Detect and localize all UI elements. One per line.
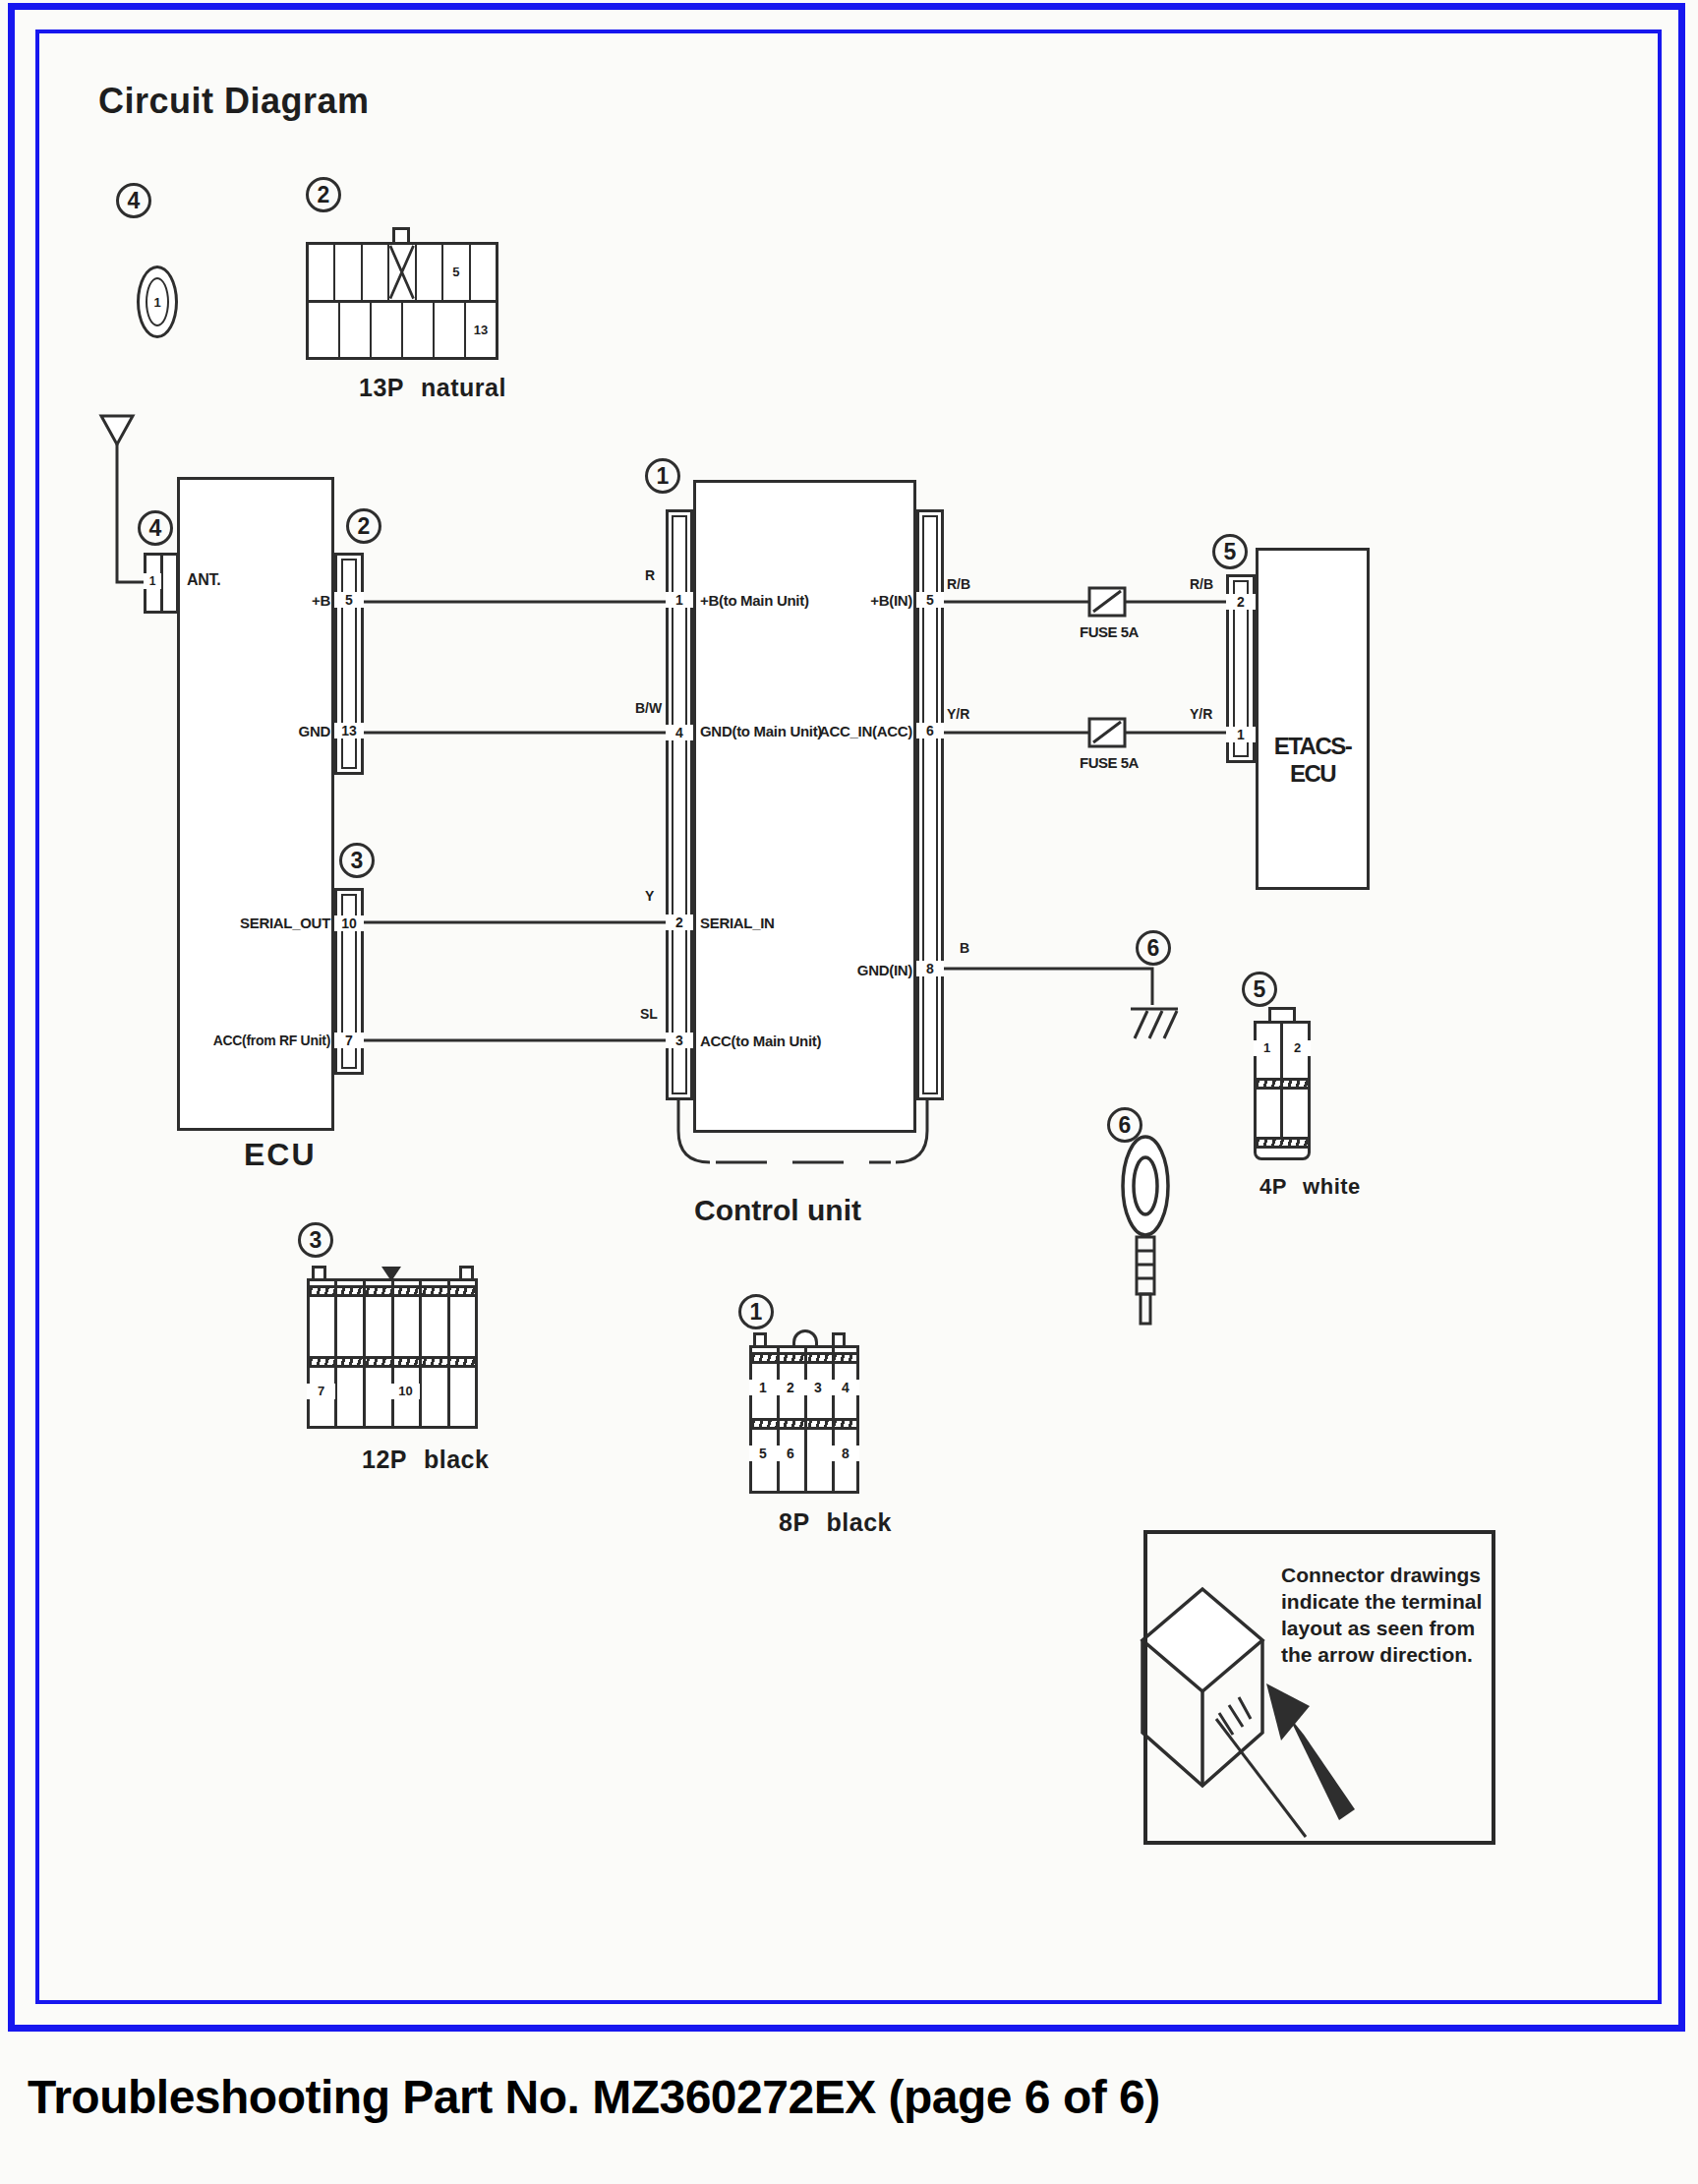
callout-2-ecu: 2	[346, 508, 381, 544]
wire-label-yr: Y/R	[947, 706, 969, 722]
connector-12p-pin-7: 7	[307, 1384, 335, 1399]
connector-cell	[372, 303, 403, 358]
cu-signal-gnd-in: GND(IN)	[857, 962, 912, 978]
cu-signal-gnd-main: GND(to Main Unit)	[700, 723, 822, 739]
control-unit-label: Control unit	[694, 1194, 861, 1227]
cu-signal-b-in: +B(IN)	[870, 592, 912, 609]
cu-pin-1: 1	[666, 592, 693, 608]
ecu-ant-label: ANT.	[187, 571, 220, 589]
connector-12p-divider	[334, 1280, 337, 1427]
connector-13p-caption: 13P natural	[359, 374, 506, 402]
connector-8p-pin-2: 2	[777, 1380, 804, 1395]
callout-1-8p: 1	[738, 1294, 774, 1329]
ecu-pin-5: 5	[334, 592, 364, 608]
connector-8p-pin-8: 8	[832, 1446, 859, 1461]
connector-12p-caption: 12P black	[362, 1446, 489, 1474]
connector-12p-divider	[419, 1280, 422, 1427]
connector-cell	[417, 245, 443, 300]
cu-pin-8: 8	[916, 961, 944, 976]
connector-cell	[403, 303, 435, 358]
connector-cell	[471, 245, 496, 300]
ecu-signal-serial-out: SERIAL_OUT	[240, 915, 330, 931]
callout-4-ant: 4	[138, 510, 173, 546]
cu-signal-acc-main: ACC(to Main Unit)	[700, 1033, 821, 1049]
callout-3-ecu: 3	[339, 843, 375, 878]
ecu-pin-10: 10	[334, 915, 364, 931]
etacs-pin-2: 2	[1226, 594, 1256, 610]
cu-pin-6: 6	[916, 723, 944, 738]
connector-4p-divider	[1280, 1023, 1283, 1139]
wire-label-bw: B/W	[635, 700, 662, 716]
connector-13p: 5 13	[306, 242, 498, 360]
callout-6-ground: 6	[1136, 930, 1171, 966]
ecu-signal-gnd: GND	[299, 723, 330, 739]
cu-signal-acc-in: ACC_IN(ACC)	[819, 723, 912, 739]
etacs-ecu-box	[1256, 548, 1370, 890]
connector-12p-divider	[363, 1280, 366, 1427]
callout-6-ring: 6	[1107, 1107, 1142, 1143]
fuse-icon	[1089, 719, 1125, 746]
connector-cell	[363, 245, 389, 300]
connector-cell	[335, 245, 362, 300]
fuse-5a-label: FUSE 5A	[1078, 754, 1141, 771]
wire-label-sl: SL	[640, 1006, 658, 1022]
cu-pin-5: 5	[916, 592, 944, 608]
ecu-ant-pin: 1	[144, 573, 161, 589]
note-text: Connector drawings indicate the terminal…	[1281, 1562, 1488, 1668]
connector-cell	[309, 303, 340, 358]
connector-12p-divider	[391, 1280, 394, 1427]
connector-12p-arrow-icon	[381, 1267, 401, 1281]
wire-label-b: B	[960, 940, 969, 956]
blocked-cell-x-icon	[389, 245, 414, 300]
blocked-cell	[389, 245, 416, 300]
scanned-page: Circuit Diagram	[0, 0, 1698, 2184]
fuse-icon	[1089, 588, 1125, 616]
callout-1-control-unit: 1	[645, 458, 680, 494]
cu-pin-3: 3	[666, 1033, 693, 1048]
connector-8p-pin-3: 3	[804, 1380, 832, 1395]
page-title: Circuit Diagram	[98, 81, 370, 122]
connector-cell	[340, 303, 372, 358]
ecu-pin-7: 7	[334, 1033, 364, 1048]
connector-8p-divider	[777, 1347, 780, 1492]
wire-label-r: R	[645, 567, 655, 583]
connector-cell	[435, 303, 466, 358]
connector-cell-pin5: 5	[443, 245, 470, 300]
ring-terminal-icon	[1123, 1137, 1168, 1324]
etacs-ecu-label: ETACS-ECU	[1259, 733, 1367, 788]
callout-2-top: 2	[306, 177, 341, 212]
connector-8p-divider	[832, 1347, 835, 1492]
etacs-pin-1: 1	[1226, 727, 1256, 742]
footer-caption: Troubleshooting Part No. MZ360272EX (pag…	[28, 2070, 1160, 2124]
connector-4p-caption: 4P white	[1259, 1174, 1361, 1200]
antenna-icon	[101, 416, 144, 582]
connector-8p-pin-5: 5	[749, 1446, 777, 1461]
connector-4p-pin-2: 2	[1284, 1040, 1311, 1056]
ecu-signal-acc: ACC(from RF Unit)	[213, 1033, 330, 1048]
connector-8p-caption: 8P black	[779, 1508, 892, 1537]
connector-oval-pin: 1	[146, 277, 169, 326]
callout-5-4p: 5	[1242, 972, 1277, 1007]
callout-5-etacs: 5	[1212, 534, 1248, 569]
cu-signal-b-main: +B(to Main Unit)	[700, 592, 809, 609]
ground-icon	[1131, 1009, 1178, 1038]
wire-label-rb: R/B	[947, 576, 970, 592]
connector-12p-pin-10: 10	[391, 1384, 420, 1399]
fuse-5a-label: FUSE 5A	[1078, 623, 1141, 640]
connector-13p-bottom-row: 13	[309, 303, 496, 358]
callout-3-12p: 3	[298, 1222, 333, 1258]
connector-13p-top-row: 5	[309, 245, 496, 303]
callout-4-top: 4	[116, 183, 151, 218]
wire-label-y: Y	[645, 888, 654, 904]
connector-8p-divider	[804, 1347, 807, 1492]
connector-12p-divider	[447, 1280, 450, 1427]
ecu-signal-b: +B	[312, 592, 330, 609]
connector-4p-pin-1: 1	[1254, 1040, 1280, 1056]
ecu-label: ECU	[244, 1137, 317, 1173]
cu-pin-2: 2	[666, 915, 693, 930]
connector-8p-pin-6: 6	[777, 1446, 804, 1461]
ecu-pin-13: 13	[334, 723, 364, 738]
wire-label-rb-etacs: R/B	[1190, 576, 1213, 592]
wire-label-yr-etacs: Y/R	[1190, 706, 1212, 722]
connector-8p-pin-4: 4	[832, 1380, 859, 1395]
cu-signal-serial-in: SERIAL_IN	[700, 915, 775, 931]
connector-cell-pin13: 13	[466, 303, 496, 358]
connector-cell	[309, 245, 335, 300]
cu-pin-4: 4	[666, 725, 693, 740]
connector-8p-pin-1: 1	[749, 1380, 777, 1395]
